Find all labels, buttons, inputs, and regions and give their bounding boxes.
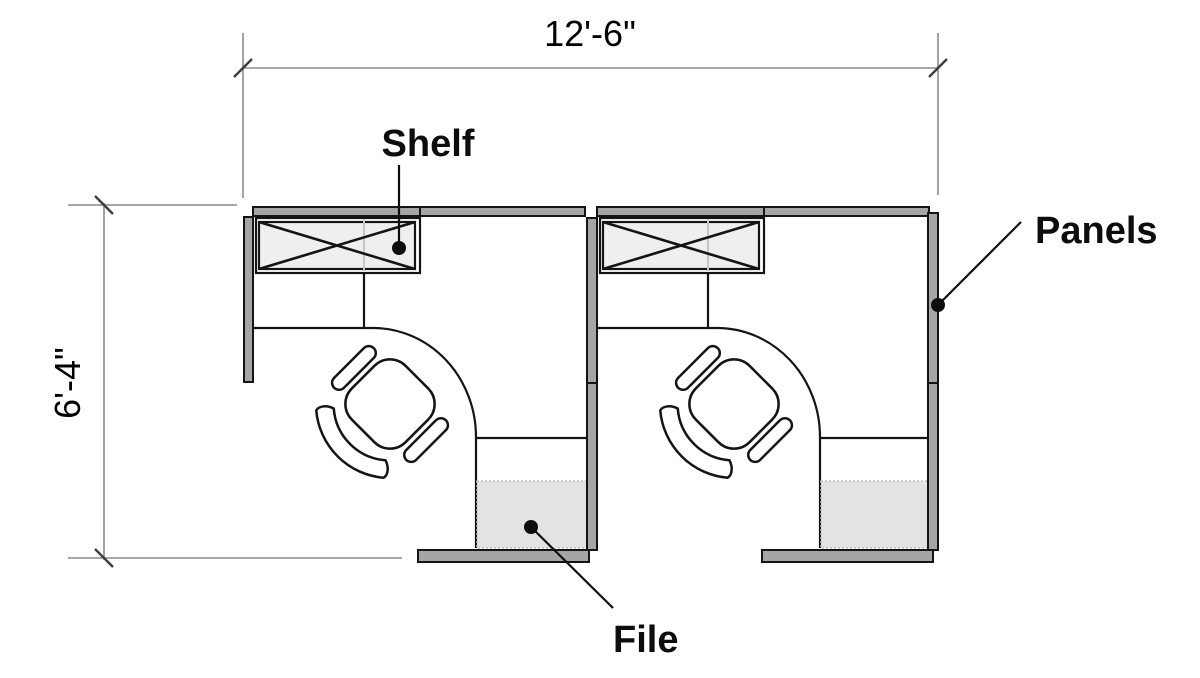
- floor-plan-drawing: 12'-6" 6'-4" Shelf Panels File: [0, 0, 1200, 678]
- shelf-leader-dot: [392, 241, 406, 255]
- width-dimension-label: 12'-6": [544, 13, 636, 54]
- file-leader-dot: [524, 520, 538, 534]
- file-label: File: [613, 619, 678, 661]
- workstation-1: [253, 207, 589, 562]
- workstation-2: [597, 207, 933, 562]
- panels-label: Panels: [1035, 210, 1158, 252]
- floor-plan-canvas: 12'-6" 6'-4" Shelf Panels File: [0, 0, 1200, 678]
- right-side-panel: [928, 213, 938, 550]
- panels-leader-line: [939, 222, 1021, 304]
- dimension-width: 12'-6": [234, 13, 947, 198]
- callout-panels: Panels: [931, 210, 1158, 312]
- left-side-panel: [244, 217, 253, 382]
- panels-leader-dot: [931, 298, 945, 312]
- shelf-label: Shelf: [382, 123, 475, 165]
- depth-dimension-label: 6'-4": [47, 347, 88, 419]
